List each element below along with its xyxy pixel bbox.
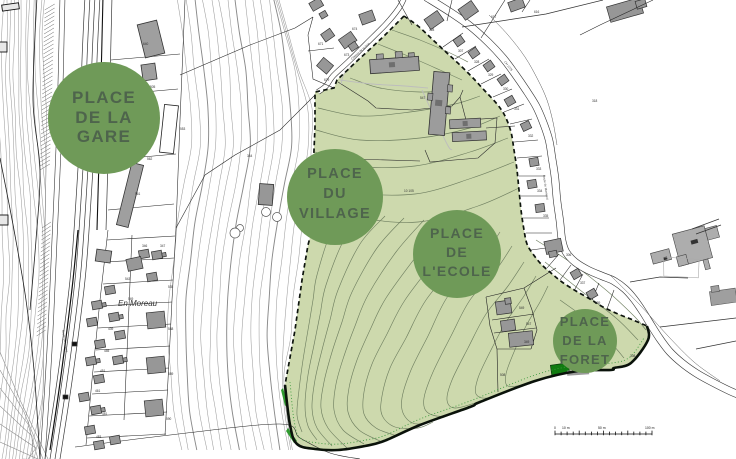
- svg-text:347: 347: [160, 244, 166, 248]
- svg-text:DE LA: DE LA: [562, 333, 608, 348]
- svg-text:588: 588: [168, 327, 174, 331]
- svg-text:344: 344: [247, 154, 253, 158]
- svg-text:VILLAGE: VILLAGE: [299, 206, 371, 222]
- svg-text:331: 331: [514, 107, 520, 111]
- svg-text:DE LA: DE LA: [75, 108, 133, 127]
- svg-text:553: 553: [180, 127, 186, 131]
- svg-text:0: 0: [554, 426, 556, 430]
- svg-text:En Moreau: En Moreau: [118, 299, 158, 308]
- svg-text:PLACE: PLACE: [307, 166, 363, 182]
- svg-text:10 m: 10 m: [562, 426, 570, 430]
- svg-text:481: 481: [102, 412, 108, 416]
- svg-text:PLACE: PLACE: [560, 314, 611, 329]
- svg-text:439: 439: [108, 327, 114, 331]
- svg-text:10 105: 10 105: [404, 189, 414, 193]
- svg-text:339: 339: [595, 301, 601, 305]
- svg-text:GARE: GARE: [77, 127, 131, 146]
- svg-text:346: 346: [142, 244, 148, 248]
- svg-text:679: 679: [324, 78, 330, 82]
- svg-text:L'ECOLE: L'ECOLE: [422, 263, 491, 279]
- svg-text:333: 333: [536, 167, 542, 171]
- svg-text:640: 640: [143, 42, 149, 46]
- svg-text:535: 535: [168, 285, 174, 289]
- svg-text:547: 547: [526, 322, 532, 326]
- svg-text:330: 330: [503, 87, 509, 91]
- svg-text:PLACE: PLACE: [430, 225, 484, 241]
- svg-text:100 m: 100 m: [645, 426, 655, 430]
- svg-text:328: 328: [429, 28, 435, 32]
- svg-text:451: 451: [100, 369, 106, 373]
- svg-text:483: 483: [96, 435, 102, 439]
- svg-text:307: 307: [458, 49, 464, 53]
- svg-text:334: 334: [537, 189, 543, 193]
- svg-text:455: 455: [104, 349, 110, 353]
- svg-text:562: 562: [147, 157, 153, 161]
- svg-text:DE: DE: [446, 244, 468, 260]
- svg-text:508: 508: [500, 373, 506, 377]
- svg-text:549: 549: [128, 297, 134, 301]
- svg-text:547: 547: [420, 96, 426, 100]
- svg-text:318: 318: [592, 99, 598, 103]
- svg-text:306: 306: [566, 253, 572, 257]
- svg-text:561: 561: [135, 192, 141, 196]
- svg-text:549: 549: [519, 306, 525, 310]
- svg-text:671: 671: [318, 42, 324, 46]
- svg-text:308: 308: [630, 354, 636, 358]
- svg-text:543: 543: [125, 277, 131, 281]
- svg-text:PLACE: PLACE: [72, 88, 136, 107]
- svg-text:332: 332: [528, 134, 534, 138]
- svg-text:FORET: FORET: [560, 352, 611, 367]
- svg-text:590: 590: [166, 417, 172, 421]
- svg-text:461: 461: [95, 389, 101, 393]
- svg-text:335: 335: [543, 214, 549, 218]
- svg-text:616: 616: [534, 10, 540, 14]
- svg-text:674: 674: [352, 27, 358, 31]
- svg-text:673: 673: [344, 53, 350, 57]
- svg-text:617: 617: [491, 15, 497, 19]
- svg-text:50 m: 50 m: [598, 426, 606, 430]
- svg-text:DU: DU: [323, 186, 347, 202]
- svg-text:329: 329: [488, 73, 494, 77]
- svg-text:589: 589: [168, 372, 174, 376]
- svg-text:328: 328: [474, 60, 480, 64]
- svg-text:337: 337: [580, 281, 586, 285]
- svg-text:349: 349: [524, 340, 530, 344]
